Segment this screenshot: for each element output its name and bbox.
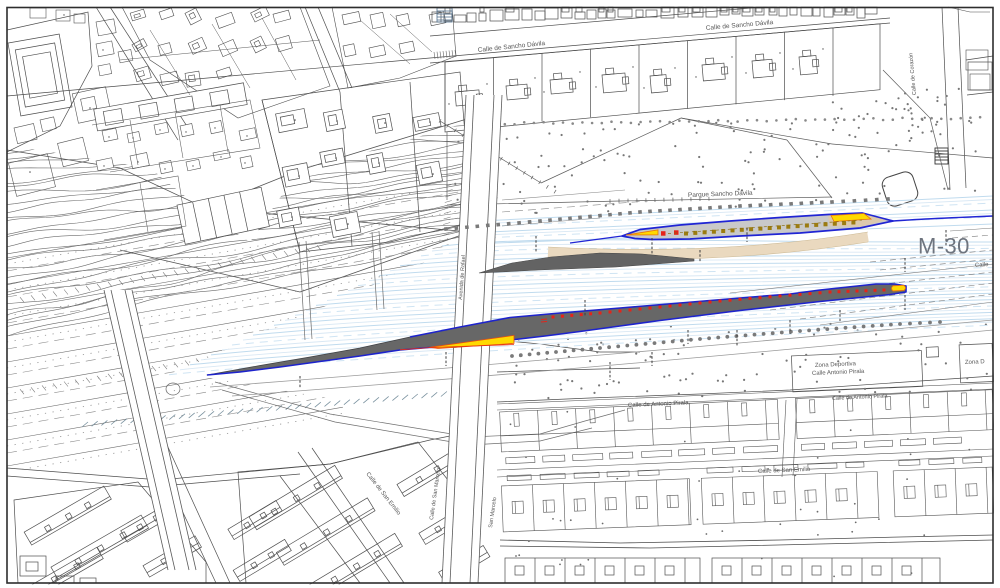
svg-text:M-30: M-30 (918, 234, 970, 259)
svg-text:Calle: Calle (975, 262, 990, 269)
svg-text:Zona D: Zona D (965, 359, 986, 366)
